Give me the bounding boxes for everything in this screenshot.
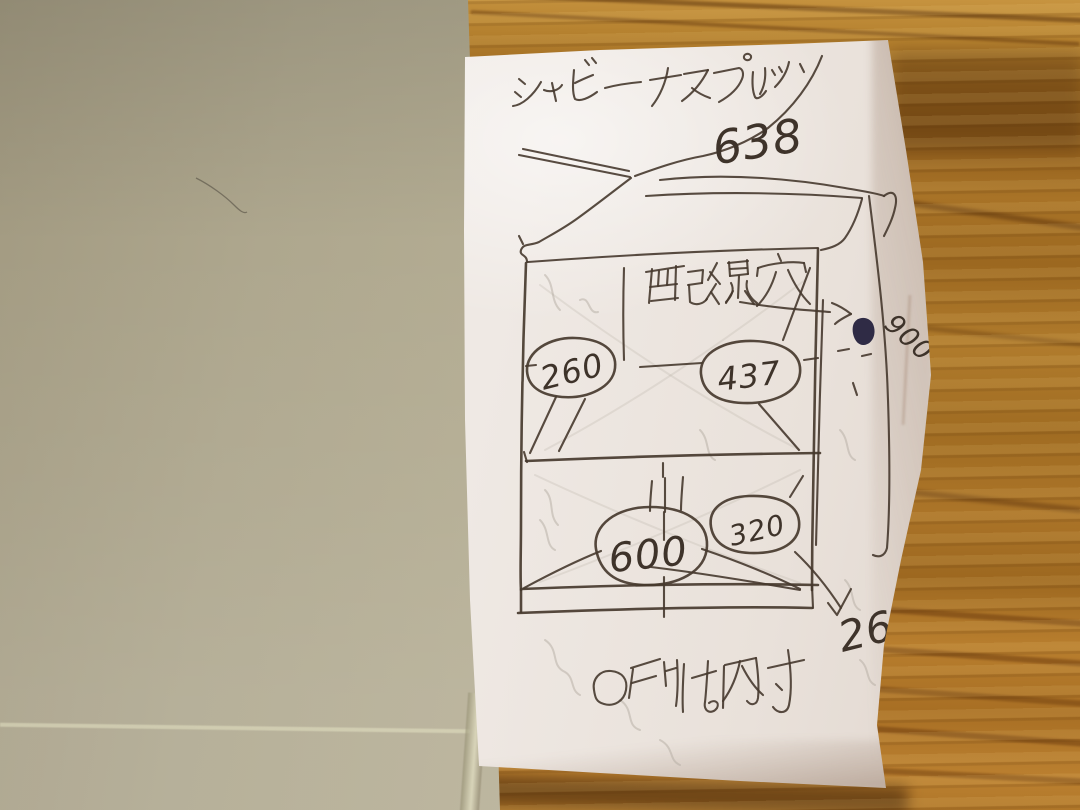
wiring-hole-ink-dot <box>853 318 875 345</box>
dim-320: 320 <box>726 508 788 553</box>
circled-dim-437: 437 <box>701 341 800 450</box>
dim-437: 437 <box>715 353 783 399</box>
dim-600: 600 <box>606 528 690 582</box>
photo-scene: シャビーエスプレッソ 638 <box>0 0 1080 810</box>
circled-dim-320: 320 <box>711 476 803 553</box>
cabinet-crown <box>519 149 896 262</box>
footnote-handwriting: ○ 印は内寸 <box>594 650 804 712</box>
circled-dim-600: 600 <box>596 507 707 585</box>
lower-section: 600 320 <box>524 463 803 617</box>
dim-638: 638 <box>709 108 807 176</box>
